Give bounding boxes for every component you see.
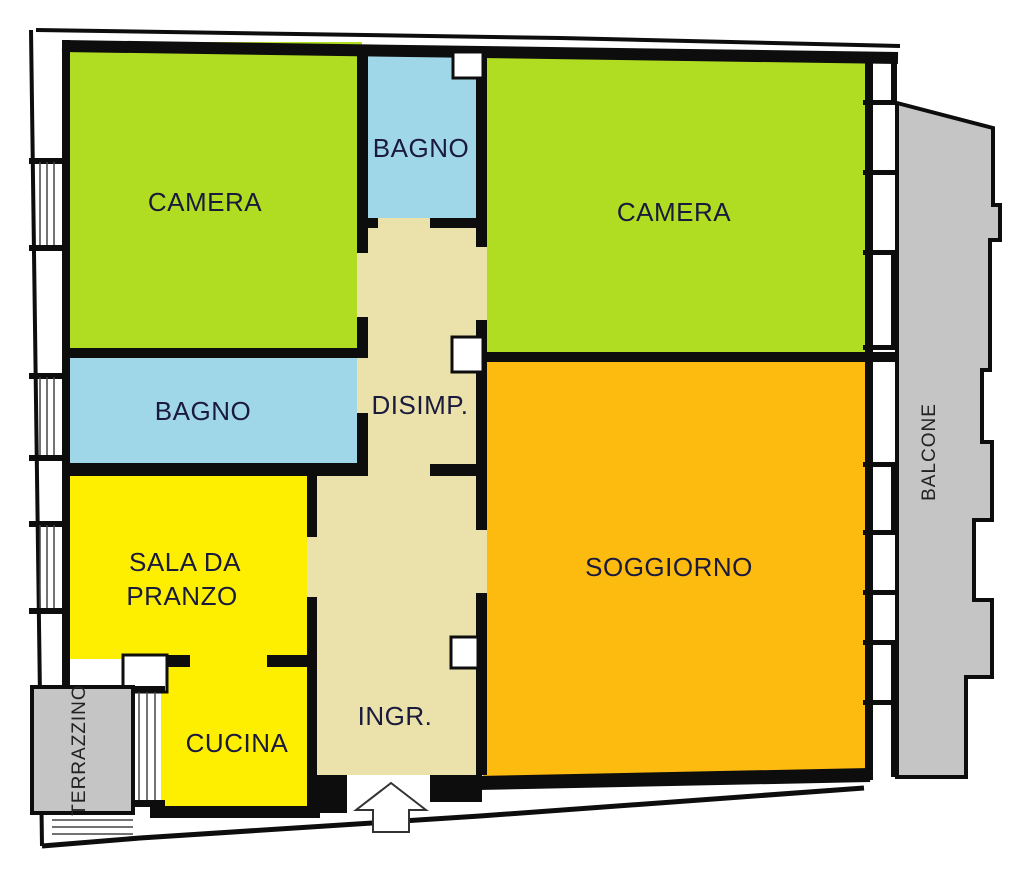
door-bagno-1 — [378, 218, 430, 228]
door-sala-da-pranzo — [307, 537, 317, 597]
wall-segment — [267, 655, 317, 667]
wall-segment — [150, 806, 320, 818]
wall-segment — [62, 463, 368, 476]
balcony: BALCONE — [897, 103, 1000, 777]
wall-segment — [430, 464, 476, 476]
label-disimpegno: DISIMP. — [372, 390, 469, 420]
terrace: TERRAZZINO — [32, 684, 165, 834]
wall-segment — [478, 775, 870, 783]
label-cucina: CUCINA — [186, 728, 289, 758]
wall-tick — [863, 530, 897, 535]
wall-tick — [863, 100, 897, 105]
wall-segment — [891, 52, 897, 100]
door-bagno-2 — [357, 358, 368, 413]
balcony-shape — [897, 103, 1000, 777]
label-sala-line1: SALA DA — [129, 547, 241, 577]
label-bagno-1: BAGNO — [373, 133, 469, 163]
wall-segment — [476, 352, 898, 362]
wall-tick — [863, 250, 897, 255]
floor-plan-svg: BALCONE TERRAZZINO CAMERA BAGNO CAMERA B… — [0, 0, 1024, 873]
label-camera-2: CAMERA — [617, 197, 731, 227]
window — [52, 820, 133, 834]
wall-segment — [865, 52, 873, 780]
wall-tick — [863, 345, 897, 350]
wall-tick — [863, 462, 897, 467]
terrace-label: TERRAZZINO — [69, 684, 90, 815]
niche — [452, 337, 483, 372]
label-sala-line2: PRANZO — [126, 581, 237, 611]
wall-tick — [863, 640, 897, 645]
opening-sala-cucina — [190, 655, 267, 667]
wall-segment — [62, 40, 70, 690]
window — [131, 686, 165, 807]
door-camera-1 — [357, 253, 368, 317]
balcony-label: BALCONE — [919, 403, 940, 501]
wall-segment — [307, 470, 317, 812]
wall-tick — [863, 700, 897, 705]
label-soggiorno: SOGGIORNO — [585, 552, 753, 582]
door-soggiorno — [476, 530, 487, 593]
room-ingresso — [313, 472, 480, 779]
floor-plan: BALCONE TERRAZZINO CAMERA BAGNO CAMERA B… — [0, 0, 1024, 873]
door-camera-2 — [476, 247, 487, 320]
wall-tick — [863, 170, 897, 175]
niche — [453, 52, 483, 78]
label-bagno-2: BAGNO — [155, 396, 251, 426]
wall-segment — [62, 348, 368, 358]
label-camera-1: CAMERA — [148, 187, 262, 217]
niche — [451, 637, 478, 668]
wall-segment — [317, 775, 347, 813]
wall-tick — [863, 590, 897, 595]
wall-segment — [430, 775, 482, 802]
label-ingresso: INGR. — [358, 701, 433, 731]
